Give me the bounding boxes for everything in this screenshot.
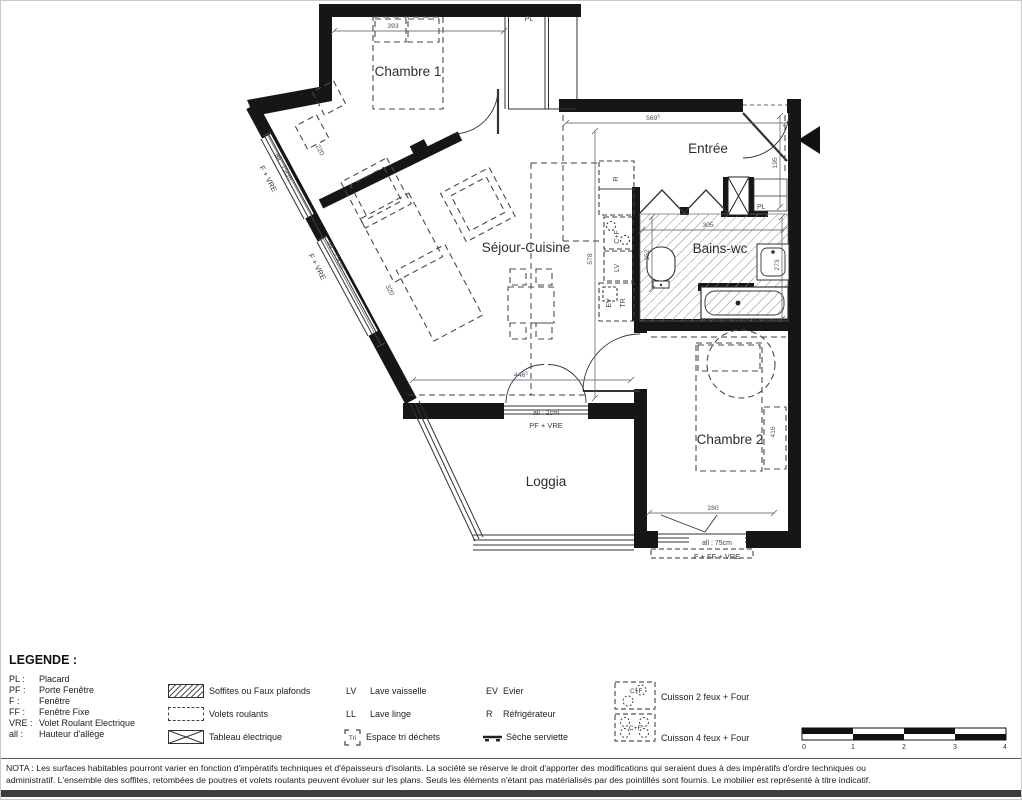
tableau-electrique-icon xyxy=(168,730,204,744)
scale-bar: 0 1 2 3 4 xyxy=(801,727,1013,753)
room-label-loggia: Loggia xyxy=(526,474,567,489)
bottom-bar xyxy=(1,790,1022,797)
svg-text:C+F: C+F xyxy=(629,725,641,732)
dim-wc: 152 xyxy=(644,249,651,261)
room-label-entree: Entrée xyxy=(688,141,728,156)
seche-serviette-icon xyxy=(482,733,503,742)
dim-bains-height: 273 xyxy=(774,259,781,271)
legend-ll: LLLave linge xyxy=(346,709,411,719)
legend-abbr-pl: PL :Placard xyxy=(9,674,70,684)
room-label-chambre2: Chambre 2 xyxy=(697,432,764,447)
dim-chambre1-width: 393 xyxy=(387,23,399,30)
dim-sejour-width: 4465 xyxy=(514,371,528,380)
legend-tri-label: Espace tri déchets xyxy=(366,732,440,742)
legend-cuisson4-label: Cuisson 4 feux + Four xyxy=(661,733,749,743)
nota-line1: NOTA : Les surfaces habitables pourront … xyxy=(6,763,1018,775)
dim-entree-height: 195 xyxy=(772,157,779,169)
legend-cuisson2-label: Cuisson 2 feux + Four xyxy=(661,692,749,702)
sink-label: EV xyxy=(606,298,613,308)
svg-text:C+F: C+F xyxy=(630,688,642,695)
floor-plan-drawing: Chambre 1 Séjour-Cuisine Entrée Bains-wc… xyxy=(1,1,1022,649)
svg-text:3: 3 xyxy=(953,744,957,751)
legend-lv: LVLave vaisselle xyxy=(346,686,427,696)
legend-tableau-label: Tableau électrique xyxy=(209,732,282,742)
legend-abbr-f: F :Fenêtre xyxy=(9,696,70,706)
svg-text:1: 1 xyxy=(851,744,855,751)
fridge-box xyxy=(599,161,634,189)
dim-diag1: 220 xyxy=(314,144,326,157)
entrance-arrow-icon xyxy=(798,126,820,154)
room-label-sejour: Séjour-Cuisine xyxy=(482,240,571,255)
volet-roulant-icon xyxy=(168,707,204,721)
hob-label: C+F xyxy=(614,230,621,243)
legend-title: LEGENDE : xyxy=(9,653,77,667)
dim-nightstand: 416 xyxy=(770,426,777,438)
legend-r: RRéfrigérateur xyxy=(486,709,556,719)
legend-volets-label: Volets roulants xyxy=(209,709,268,719)
nota-line2: administratif. L'ensemble des soffites, … xyxy=(6,775,1018,787)
closet-label-chambre1: PL xyxy=(525,16,534,23)
legend-abbr-all: all :Hauteur d'allège xyxy=(9,729,104,739)
legend-abbr-pf: PF :Porte Fenêtre xyxy=(9,685,94,695)
legend-soffites-label: Soffites ou Faux plafonds xyxy=(209,686,310,696)
closet-label-entree: PL xyxy=(757,204,766,211)
bed2 xyxy=(696,343,762,471)
soffit-hatch-icon xyxy=(168,684,204,698)
tri-dechets-icon: Tri xyxy=(344,729,361,746)
legend-ev: EVEvier xyxy=(486,686,524,696)
svg-text:2: 2 xyxy=(902,744,906,751)
electrical-panel-icon xyxy=(728,177,749,215)
loggia-railing xyxy=(411,401,634,550)
legend-abbr-ff: FF :Fenêtre Fixe xyxy=(9,707,90,717)
svg-text:0: 0 xyxy=(802,744,806,751)
svg-text:4: 4 xyxy=(1003,744,1007,751)
legend-seche-label: Sèche serviette xyxy=(506,732,568,742)
dim-chambre2-width: 280 xyxy=(707,505,719,512)
loggia-door-type: PF + VRE xyxy=(529,421,563,430)
tri-label: TR xyxy=(620,298,627,307)
legend-abbr-vre: VRE :Volet Roulant Electrique xyxy=(9,718,135,728)
dim-entree-width: 5695 xyxy=(646,114,660,123)
nota-separator xyxy=(1,758,1022,759)
loggia-door-allege: all : 2cm xyxy=(533,410,559,417)
nota-text: NOTA : Les surfaces habitables pourront … xyxy=(6,763,1018,786)
rug xyxy=(707,330,775,398)
room-label-bains: Bains-wc xyxy=(693,241,748,256)
dishwasher-label: LV xyxy=(614,264,621,272)
floor-plan-page: Chambre 1 Séjour-Cuisine Entrée Bains-wc… xyxy=(0,0,1022,800)
washbasin xyxy=(757,244,789,280)
cuisson-2-feux-icon: C+F xyxy=(614,681,656,710)
svg-text:Tri: Tri xyxy=(349,735,356,742)
dim-sejour-height: 578 xyxy=(587,253,594,265)
dim-diag2: 320 xyxy=(384,284,396,297)
chambre2-window-type: F + FF + VRE xyxy=(694,552,740,561)
chambre2-window-allege: all : 75cm xyxy=(702,540,732,547)
dim-bains-width: 305 xyxy=(702,222,714,229)
fridge-label: R xyxy=(613,176,620,181)
cuisson-4-feux-icon: C+F xyxy=(614,713,656,742)
room-label-chambre1: Chambre 1 xyxy=(375,64,442,79)
